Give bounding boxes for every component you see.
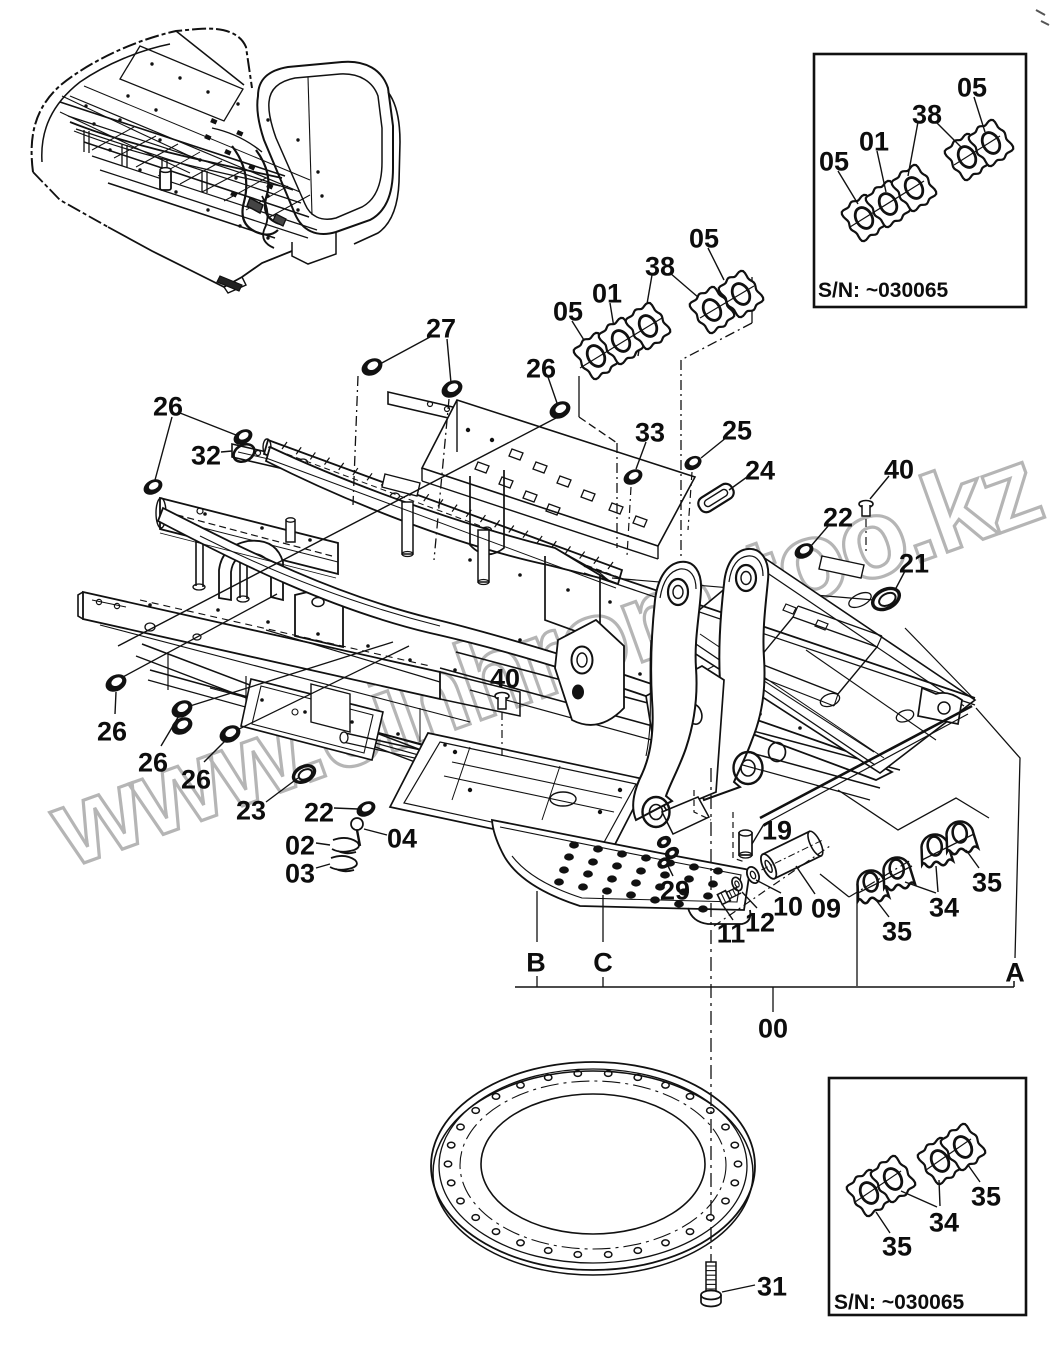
svg-text:26: 26 [526, 354, 556, 384]
svg-text:10: 10 [773, 892, 803, 922]
svg-text:35: 35 [882, 917, 912, 947]
svg-text:S/N: ~030065: S/N: ~030065 [834, 1291, 964, 1314]
svg-text:A: A [1005, 958, 1025, 988]
svg-text:05: 05 [553, 297, 583, 327]
svg-text:05: 05 [689, 224, 719, 254]
svg-text:40: 40 [490, 664, 520, 694]
svg-text:C: C [593, 948, 613, 978]
svg-text:22: 22 [304, 798, 334, 828]
svg-text:24: 24 [745, 456, 775, 486]
svg-text:11: 11 [717, 919, 746, 949]
svg-text:22: 22 [823, 503, 853, 533]
svg-text:32: 32 [191, 441, 221, 471]
svg-text:19: 19 [762, 816, 792, 846]
svg-text:34: 34 [929, 893, 959, 923]
svg-text:04: 04 [387, 824, 417, 854]
svg-text:03: 03 [285, 859, 315, 889]
svg-text:25: 25 [722, 416, 752, 446]
svg-text:29: 29 [660, 876, 690, 906]
svg-text:S/N: ~030065: S/N: ~030065 [818, 279, 948, 302]
svg-text:35: 35 [882, 1232, 912, 1262]
svg-text:23: 23 [236, 796, 266, 826]
svg-text:26: 26 [153, 392, 183, 422]
svg-text:38: 38 [912, 100, 942, 130]
svg-text:01: 01 [859, 127, 889, 157]
svg-text:40: 40 [884, 455, 914, 485]
svg-text:38: 38 [645, 252, 675, 282]
svg-text:05: 05 [819, 147, 849, 177]
svg-text:12: 12 [745, 908, 775, 938]
svg-text:26: 26 [138, 748, 168, 778]
svg-text:26: 26 [97, 717, 127, 747]
svg-text:35: 35 [972, 868, 1002, 898]
svg-text:02: 02 [285, 831, 315, 861]
svg-text:33: 33 [635, 418, 665, 448]
svg-text:27: 27 [426, 314, 456, 344]
svg-text:09: 09 [811, 894, 841, 924]
svg-text:B: B [526, 948, 546, 978]
svg-text:34: 34 [929, 1208, 959, 1238]
svg-text:01: 01 [592, 279, 622, 309]
svg-text:05: 05 [957, 73, 987, 103]
svg-text:00: 00 [758, 1014, 788, 1044]
svg-text:26: 26 [181, 765, 211, 795]
svg-text:35: 35 [971, 1182, 1001, 1212]
svg-text:31: 31 [757, 1272, 787, 1302]
